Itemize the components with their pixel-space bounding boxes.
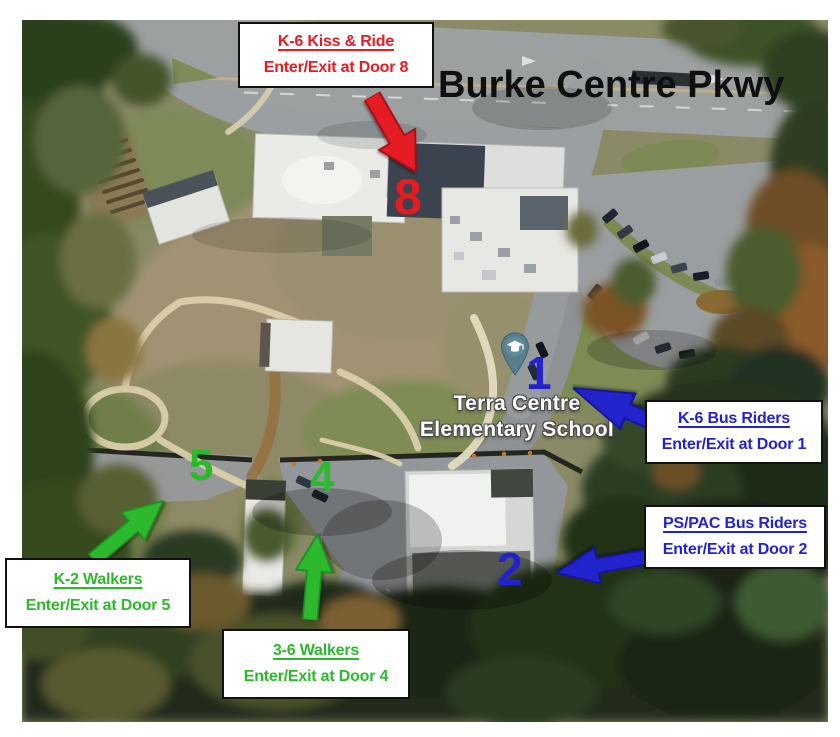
callout-subtitle: Enter/Exit at Door 5 <box>26 593 170 619</box>
kiss-and-ride-callout: K-6 Kiss & Ride Enter/Exit at Door 8 <box>238 22 434 88</box>
door-1-number: 1 <box>526 350 552 396</box>
callout-subtitle: Enter/Exit at Door 1 <box>662 432 806 458</box>
pspac-bus-riders-callout: PS/PAC Bus Riders Enter/Exit at Door 2 <box>644 505 826 569</box>
callout-title: K-6 Kiss & Ride <box>278 29 394 55</box>
k6-bus-riders-callout: K-6 Bus Riders Enter/Exit at Door 1 <box>645 400 823 464</box>
callout-subtitle: Enter/Exit at Door 8 <box>264 55 408 81</box>
door-2-number: 2 <box>497 546 523 592</box>
door-4-arrow-icon <box>290 533 337 622</box>
door-4-number: 4 <box>310 456 334 500</box>
callout-title: K-6 Bus Riders <box>678 406 790 432</box>
road-name-label: Burke Centre Pkwy <box>438 64 784 107</box>
k2-walkers-callout: K-2 Walkers Enter/Exit at Door 5 <box>5 558 191 628</box>
3-6-walkers-callout: 3-6 Walkers Enter/Exit at Door 4 <box>222 629 410 699</box>
door-8-number: 8 <box>394 172 422 222</box>
callout-title: 3-6 Walkers <box>273 638 359 664</box>
callout-subtitle: Enter/Exit at Door 4 <box>244 664 388 690</box>
annotated-school-arrival-map: Burke Centre Pkwy Terra Centre Elementar… <box>0 0 840 737</box>
callout-title: K-2 Walkers <box>54 567 143 593</box>
door-5-number: 5 <box>189 444 213 488</box>
callout-title: PS/PAC Bus Riders <box>663 511 807 537</box>
callout-subtitle: Enter/Exit at Door 2 <box>663 537 807 563</box>
